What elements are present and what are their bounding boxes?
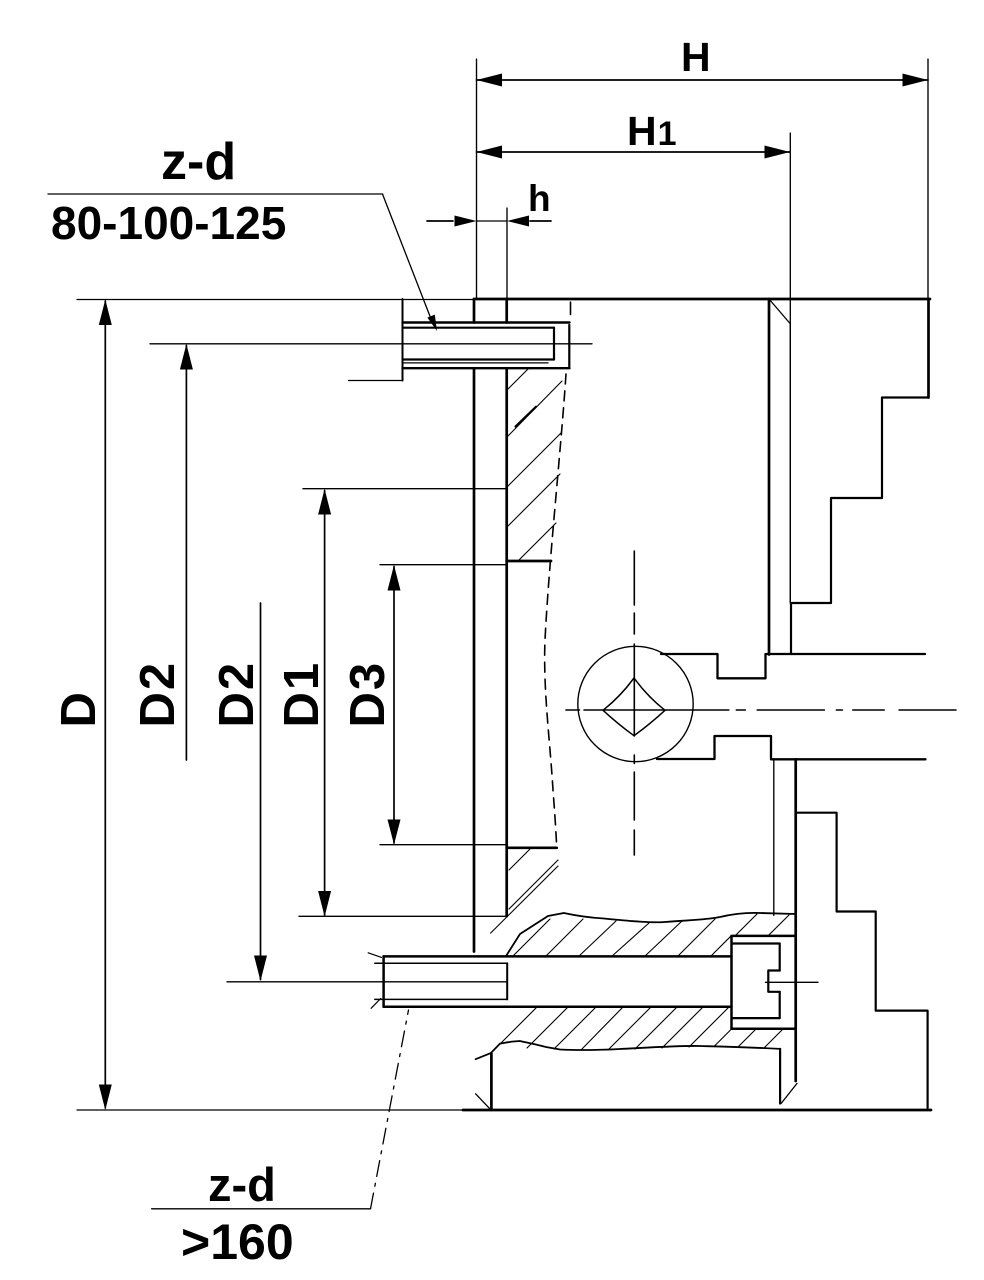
svg-text:z-d: z-d	[161, 133, 236, 191]
svg-text:D3: D3	[341, 661, 395, 728]
svg-text:D: D	[52, 692, 106, 727]
svg-text:z-d: z-d	[208, 1158, 276, 1211]
svg-text:D1: D1	[275, 661, 329, 728]
svg-text:h: h	[528, 178, 551, 219]
svg-text:H: H	[681, 34, 711, 80]
svg-text:D2: D2	[210, 661, 264, 728]
svg-text:H1: H1	[627, 108, 677, 154]
svg-text:>160: >160	[181, 1214, 294, 1270]
svg-text:D2: D2	[131, 661, 185, 728]
svg-text:80-100-125: 80-100-125	[51, 197, 286, 249]
